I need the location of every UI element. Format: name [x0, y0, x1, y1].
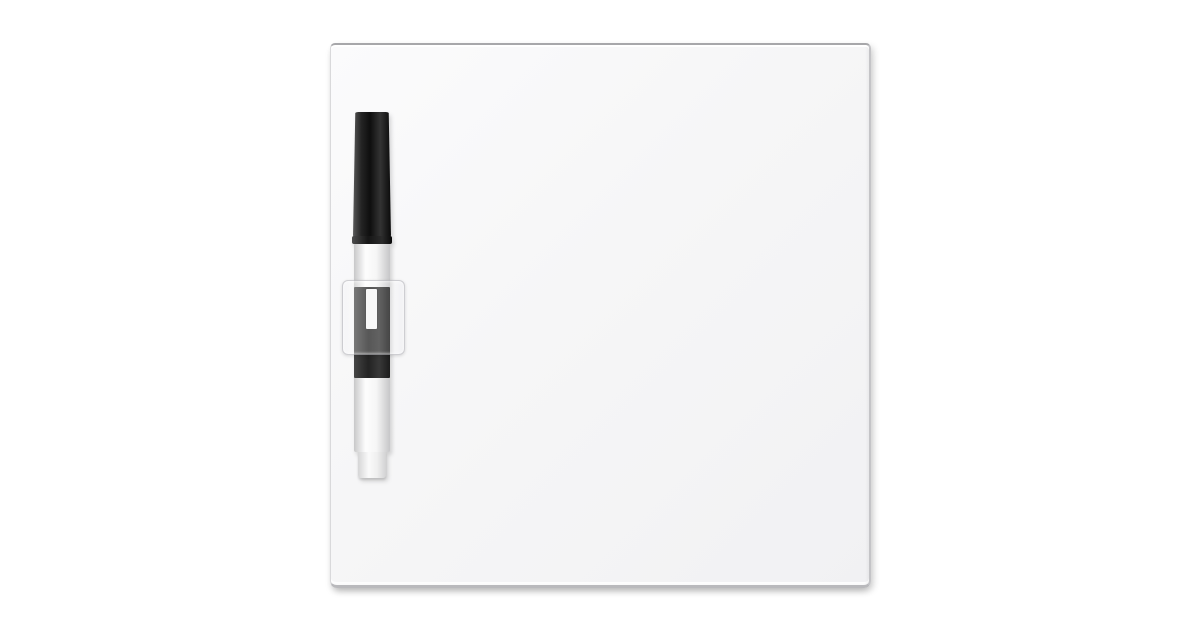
- marker-cap-lip: [352, 236, 392, 244]
- marker-cap: [353, 112, 391, 237]
- pen-holder-clip: [342, 280, 405, 355]
- marker-tip-section: [358, 452, 386, 478]
- product-photo: [0, 0, 1200, 630]
- dry-erase-board: [330, 43, 871, 588]
